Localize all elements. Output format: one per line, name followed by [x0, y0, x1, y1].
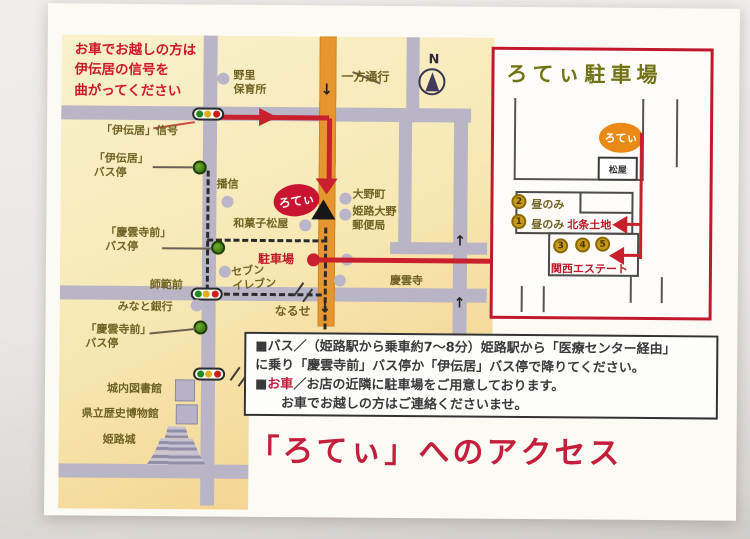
parking-inset-map: ろてぃ駐車場 ろてぃ 松屋 2 昼のみ 1 昼のみ 北条土地 3 4 5 関西エ… — [490, 47, 714, 321]
inset-title: ろてぃ駐車場 — [506, 58, 662, 89]
page-title: 「ろてぃ」へのアクセス — [248, 425, 622, 473]
access-map-paper: ↓ ↓ ↑ ↑ — [44, 3, 740, 520]
route-arrow-down-icon — [316, 178, 338, 194]
label-connector — [153, 166, 193, 168]
label-pref-history-museum: 県立歴史博物館 — [82, 407, 159, 421]
parking-badge-5: 5 — [595, 237, 610, 252]
himeji-castle-icon — [165, 426, 189, 438]
inset-matsuya-box: 松屋 — [598, 157, 638, 181]
label-seven-eleven: セブン イレブン — [231, 262, 277, 293]
label-himeji-castle: 姫路城 — [103, 433, 136, 447]
label-post-office: 姫路大野 郵便局 — [352, 205, 396, 233]
parking-badge-3: 3 — [553, 238, 568, 253]
inset-pointer-line — [639, 133, 643, 259]
plot-line — [521, 286, 523, 312]
label-keiunji-mae-bus-stop-1: 「慶雲寺前」 バス停 — [105, 226, 171, 254]
bullet: ■ — [255, 377, 267, 392]
landmark-dot-postoffice — [339, 209, 351, 221]
road-vertical-postoffice — [398, 120, 412, 254]
label-connector — [149, 328, 195, 334]
label-nozato-nursery: 野里 保育所 — [233, 69, 266, 97]
label-jonai-library: 城内図書館 — [107, 382, 162, 396]
badge-1-text: 昼のみ — [531, 216, 564, 232]
plot-line — [543, 286, 545, 312]
inset-pointer-line — [623, 254, 641, 257]
bus-stop-icon-keiunji-mae-2 — [193, 320, 207, 334]
inset-roti-shop-marker: ろてぃ — [599, 123, 643, 153]
bus-route-dashed — [207, 239, 327, 243]
landmark-dot-banshin — [221, 196, 233, 208]
traffic-light-icon-south — [193, 367, 225, 380]
library-building — [175, 379, 195, 401]
car-route-line — [327, 118, 332, 180]
label-wagashi-matsuya: 和菓子松屋 — [233, 217, 288, 231]
inset-pointer-line — [626, 223, 641, 226]
landmark-dot-nursery — [217, 73, 229, 85]
inset-arrow-left-icon — [609, 247, 624, 265]
one-way-up-arrow-icon: ↑ — [454, 295, 466, 311]
plot-sub-lot — [579, 193, 631, 213]
car-text: ／お店の近隣に駐車場をご用意しております。 — [293, 377, 564, 394]
label-keiunji-mae-bus-stop-2: 「慶雲寺前」 バス停 — [85, 323, 151, 351]
landmark-dot-ohnocho — [339, 193, 351, 205]
car-word: お車 — [267, 377, 293, 392]
landmark-dot-keiunji — [334, 275, 346, 287]
label-banshin: 播信 — [217, 178, 239, 192]
badge-2-text: 昼のみ — [531, 196, 564, 212]
parking-badge-2: 2 — [511, 194, 526, 209]
crossing-hatch — [230, 367, 241, 381]
himeji-castle-icon — [154, 438, 198, 452]
label-ideni-bus-stop: 「伊伝居」 バス停 — [94, 152, 149, 180]
road-horizontal-bottom — [58, 463, 248, 478]
landmark-dot-wagashi — [299, 219, 311, 231]
one-way-down-arrow-icon: ↓ — [320, 80, 333, 98]
photo-background: ↓ ↓ ↑ ↑ — [0, 0, 750, 539]
hojo-tochi-label: 北条土地 — [567, 216, 611, 232]
label-ohno-cho: 大野町 — [352, 188, 385, 202]
landmark-dot-minatobank — [191, 299, 203, 311]
himeji-castle-icon — [146, 452, 206, 465]
parking-badge-4: 4 — [575, 237, 590, 252]
parking-badge-1: 1 — [511, 214, 526, 229]
inset-matsuya-label: 松屋 — [609, 162, 627, 175]
plot-line — [676, 99, 679, 167]
plot-line — [514, 98, 517, 180]
label-one-way: 一方通行 — [341, 70, 389, 85]
inset-arrow-left-icon — [612, 216, 627, 234]
car-direction-note: お車でお越しの方は 伊伝居の信号を 曲がってください — [74, 40, 196, 102]
access-info-box: ■バス／（姫路駅から乗車約7～8分）姫路駅から「医療センター経由」 に乗り「慶雲… — [244, 332, 719, 420]
museum-building — [176, 404, 198, 424]
plot-line — [630, 277, 632, 303]
traffic-light-icon-ideni — [192, 107, 224, 120]
bus-stop-icon-ideni — [193, 160, 207, 174]
label-ideni-signal: 「伊伝居」信号 — [101, 124, 178, 138]
route-arrow-right-icon — [259, 108, 277, 126]
car-info-line2: お車でお越しの方はご連絡くださいませ。 — [255, 394, 707, 416]
compass-north-label: N — [429, 52, 440, 68]
bus-stop-icon-keiunji-mae-1 — [211, 241, 225, 255]
plot-line — [661, 277, 663, 303]
compass-needle-icon — [425, 72, 439, 91]
label-minato-bank: みなと銀行 — [118, 300, 173, 314]
landmark-dot-seveneleven — [219, 266, 231, 278]
label-shihan-mae: 師範前 — [150, 278, 183, 292]
label-keiunji-temple: 慶雲寺 — [390, 274, 423, 288]
label-naruse: なるせ — [275, 304, 311, 319]
one-way-up-arrow-icon: ↑ — [454, 233, 466, 249]
